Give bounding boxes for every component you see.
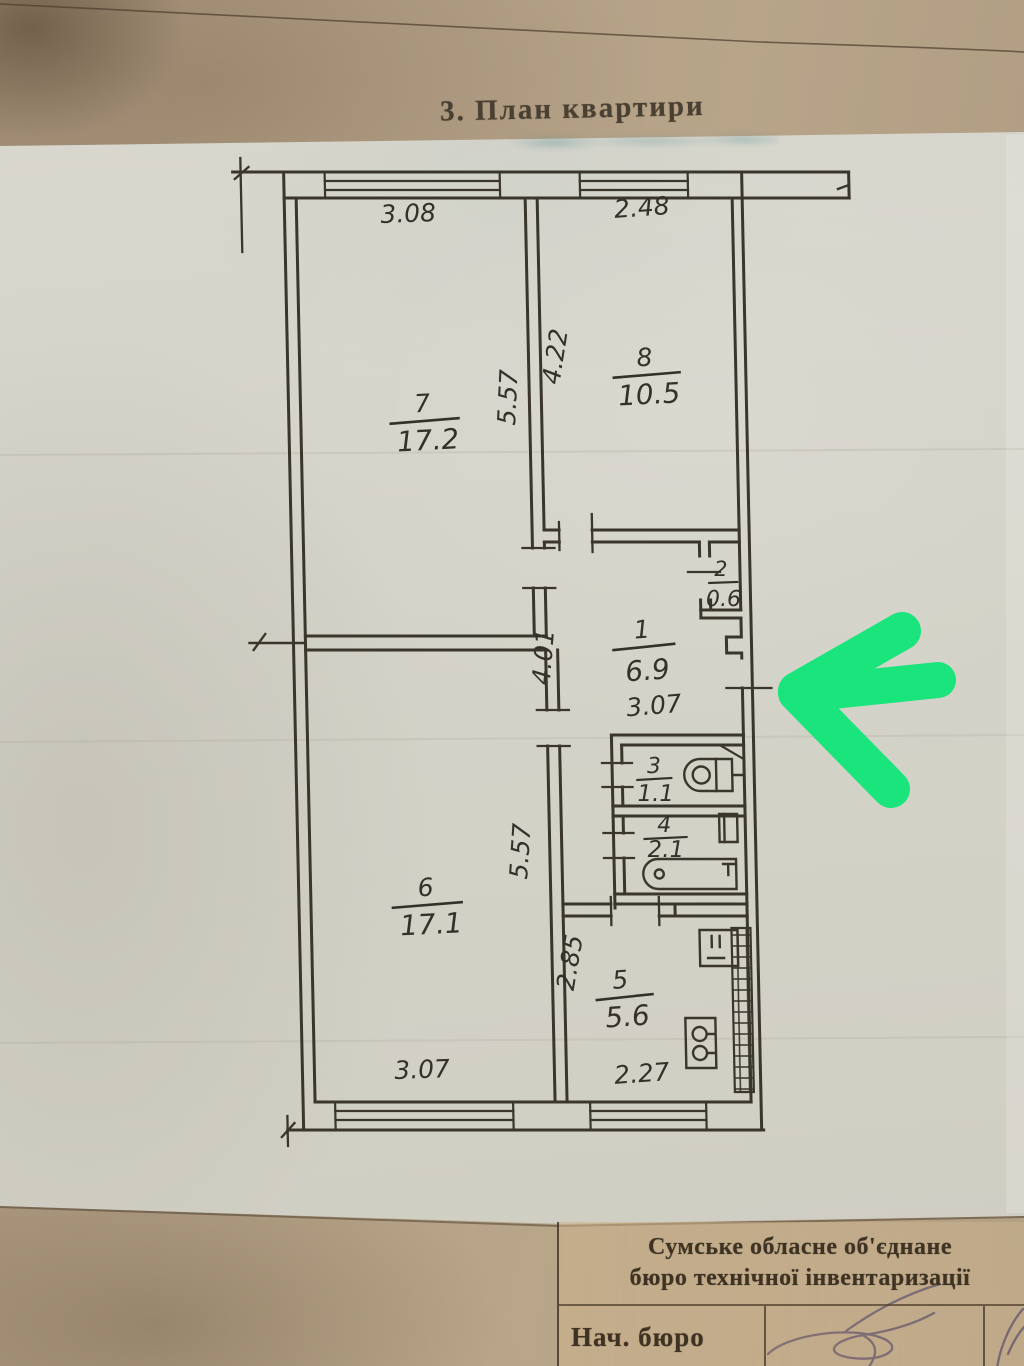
bureau-name-line1: Сумське обласне об'єднане: [565, 1232, 1024, 1263]
photographed-floor-plan-document: { "title": "3. План квартири", "plan": {…: [0, 0, 1024, 1366]
signatory-label: Нач. бюро: [571, 1322, 705, 1353]
table-cell-divider: [764, 1306, 766, 1366]
bureau-name: Сумське обласне об'єднане бюро технічної…: [565, 1232, 1024, 1294]
table-cell-divider: [983, 1306, 985, 1366]
bti-bureau-document: Сумське обласне об'єднане бюро технічної…: [557, 1222, 1024, 1366]
bureau-name-line2: бюро технічної інвентаризації: [565, 1263, 1024, 1294]
plan-paper-sheet: [0, 0, 1024, 1366]
faded-stamp: [498, 126, 778, 156]
table-rule: [559, 1304, 1024, 1306]
